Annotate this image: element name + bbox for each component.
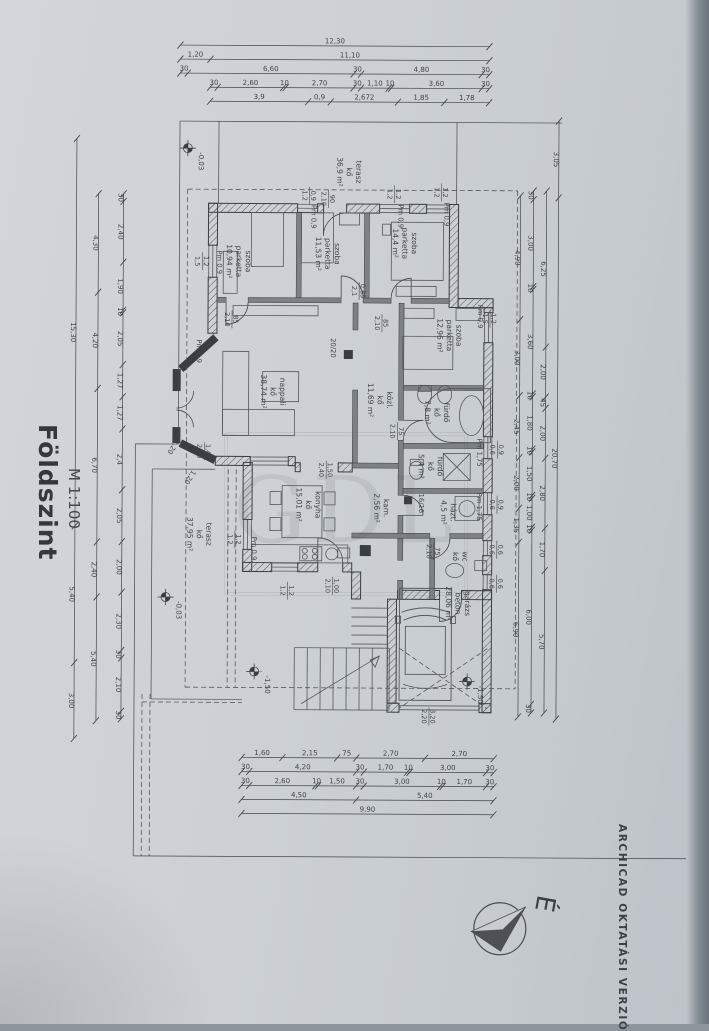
dim-label: 5,70	[537, 634, 545, 650]
interior-wall	[411, 298, 449, 303]
level-marker	[166, 597, 171, 602]
room-label: 12,96 m²	[435, 318, 444, 352]
note-label: 1,20	[166, 439, 181, 456]
furniture	[233, 305, 318, 315]
dim-label: 4,80	[414, 66, 430, 74]
room-label: kő	[195, 530, 204, 539]
interior-wall	[363, 298, 391, 303]
dim-label: 20,70	[550, 448, 558, 468]
dim-label: 3,9	[254, 93, 265, 101]
level-marker	[463, 677, 468, 682]
dim-label: 1,00	[525, 505, 533, 521]
dim-label: 10	[525, 492, 533, 501]
room-label: közl.	[385, 392, 394, 409]
dim-label: 1,70	[456, 778, 472, 786]
dim-label: 30	[527, 191, 535, 200]
dim-label: 2,45	[512, 419, 520, 435]
page-title: Földszint	[33, 424, 62, 560]
room-label: nappali	[278, 378, 287, 406]
opening-size: 2,20	[420, 709, 428, 724]
opening-size: 3,20	[428, 709, 436, 724]
dim-line	[180, 73, 489, 75]
level-marker	[467, 682, 472, 687]
level-marker	[250, 667, 255, 672]
dim-label: 6,25	[539, 261, 547, 277]
dim-label: 30	[356, 764, 365, 772]
exterior-wall	[483, 556, 492, 575]
exterior-wall	[458, 299, 493, 308]
dim-label: 1,50	[525, 466, 533, 482]
exterior-wall	[479, 704, 491, 713]
dim-label: 30	[481, 80, 490, 88]
dim-label: 0,9	[314, 93, 325, 101]
opening-size: 85	[381, 319, 389, 327]
furniture	[340, 213, 360, 225]
room-label: parketta	[234, 246, 243, 278]
furniture	[396, 286, 436, 296]
interior-wall	[398, 303, 404, 420]
dim-label: 75	[342, 749, 351, 757]
opening-size: 0,6	[488, 545, 496, 555]
dim-line	[556, 121, 559, 719]
dim-label: 1,70	[378, 764, 394, 772]
dim-label: 2,00	[539, 364, 547, 380]
dim-label: 30	[481, 66, 490, 74]
dim-label: 4,20	[91, 332, 99, 348]
opening-size: 85	[231, 315, 239, 323]
room-label: 11,69 m²	[366, 383, 375, 417]
level-marker	[254, 671, 259, 676]
dim-label: 1,35	[512, 517, 520, 533]
parapet-label: Pm 1,75	[475, 493, 483, 521]
level-label: -0,03	[174, 601, 182, 619]
dim-label: 30	[524, 704, 532, 713]
dim-label: 10	[116, 307, 124, 316]
interior-wall	[353, 303, 358, 330]
dim-label: 2,00	[115, 559, 123, 575]
opening-size: 0,9	[309, 191, 317, 201]
dim-label: 1,78	[459, 94, 475, 102]
opening-size: 2,10	[373, 316, 381, 331]
dim-label: 2,05	[116, 331, 124, 347]
dim-label: 1,70	[538, 542, 546, 558]
dim-label: 4,30	[91, 235, 99, 251]
opening-size: 0,6	[488, 445, 496, 455]
level-marker	[183, 144, 188, 149]
photo-shadow	[0, 830, 220, 1024]
dim-label: 30	[210, 79, 219, 87]
dim-line	[210, 87, 489, 88]
fixture-path	[401, 608, 449, 613]
parapet-label: Pm 0,9	[476, 305, 484, 329]
exterior-wall	[484, 308, 493, 313]
dim-label: 4,50	[291, 791, 307, 799]
dim-label: 2,05	[115, 508, 123, 524]
exterior-wall	[483, 459, 492, 493]
opening-size: 1,2	[441, 187, 449, 197]
pillar	[344, 350, 353, 359]
dim-label: 6,70	[90, 457, 98, 473]
parapet-label: Pm 0,9	[442, 203, 450, 227]
dim-label: 3,60	[526, 334, 534, 350]
opening-size: 2,10	[195, 444, 203, 459]
opening-size: 0,6	[496, 579, 504, 589]
opening-size: 1,40	[204, 444, 212, 459]
furniture	[404, 308, 434, 318]
plan-scale: M 1:100	[65, 468, 83, 529]
line	[180, 121, 562, 123]
dim-label: 3,00	[67, 693, 75, 709]
dim-label: 11,10	[340, 51, 360, 59]
exterior-wall	[483, 343, 492, 437]
door-swing	[391, 278, 411, 298]
opening-size: 90	[328, 195, 336, 203]
furniture	[222, 351, 248, 435]
dim-label: 2,80	[538, 485, 546, 501]
dim-label: 3,00	[394, 778, 410, 786]
dim-label: 2,40	[90, 562, 98, 578]
dim-label: 2,30	[114, 613, 122, 629]
line	[178, 121, 180, 444]
room-label: 11,53 m²	[314, 237, 323, 271]
dim-line	[241, 813, 493, 814]
dim-label: 1,27	[115, 405, 123, 421]
dim-label: 30	[114, 710, 122, 719]
dim-label: 2,4	[115, 454, 123, 466]
dim-label: 30	[353, 65, 362, 73]
dim-label: 4,20	[295, 763, 311, 771]
dim-label: 6,90	[511, 622, 519, 638]
dim-label: 45	[539, 398, 547, 407]
dim-label: 6,00	[524, 609, 532, 625]
dim-label: 30	[485, 778, 494, 786]
dim-label: 2,40	[116, 224, 124, 240]
dim-label: 1,10	[367, 80, 383, 88]
room-label: kő	[432, 408, 441, 417]
dim-label: 30	[180, 65, 189, 73]
dim-label: 30	[241, 763, 250, 771]
dim-label: 1,80	[525, 415, 533, 431]
opening-size: 2,10	[320, 192, 328, 207]
opening-size: 1,2	[301, 191, 309, 201]
dim-label: 30	[117, 193, 125, 202]
compass: É	[471, 892, 563, 955]
interior-wall	[248, 297, 341, 302]
dim-label: 2,70	[312, 79, 328, 87]
dim-label: 30	[241, 777, 250, 785]
gdl-watermark: GDL	[224, 432, 468, 596]
furniture	[251, 212, 283, 266]
opening-size: 2,1	[350, 286, 358, 296]
dim-label: 2,60	[274, 777, 290, 785]
line	[301, 656, 379, 704]
opening-size: 1,5	[193, 256, 201, 266]
parapet-label: Pm 0,9	[309, 205, 317, 229]
exterior-wall	[483, 515, 492, 541]
opening-size: 1,2	[202, 256, 210, 266]
interior-wall	[296, 213, 301, 298]
dim-label: 6,60	[263, 65, 279, 73]
level-label: -0,03	[197, 152, 205, 170]
dim-label: 30	[353, 79, 362, 87]
dim-label: 3,60	[429, 80, 445, 88]
dim-label: 12,30	[325, 37, 345, 45]
exterior-wall	[410, 204, 427, 213]
room-label: parketta	[400, 227, 409, 259]
room-label: terasz	[354, 160, 363, 183]
parapet-label: Pm 0,9	[215, 250, 223, 274]
opening-size: 1,2	[386, 189, 394, 199]
dim-label: 5,40	[89, 651, 97, 667]
room-label: kő	[269, 387, 278, 396]
fixture-path	[370, 656, 379, 667]
room-label: 7,8 m²	[423, 400, 432, 425]
dim-label: 30	[355, 778, 364, 786]
exterior-wall	[209, 203, 298, 212]
dim-label: 10	[525, 446, 533, 455]
dim-line	[210, 101, 489, 102]
dashed-line	[188, 189, 518, 191]
dim-line	[241, 799, 493, 800]
level-label: -1,50	[476, 686, 484, 704]
dim-label: 3,00	[526, 235, 534, 251]
exterior-wall	[387, 599, 397, 703]
fixture-path	[403, 615, 447, 620]
room-label: szoba	[244, 251, 253, 273]
room-label: 10,94 m²	[225, 244, 234, 278]
room-label: parketta	[323, 238, 332, 270]
dim-label: 3,00	[440, 764, 456, 772]
dim-label: 1,50	[329, 777, 345, 785]
dim-label: 10	[525, 524, 533, 533]
room-label: 38,74 m²	[259, 374, 268, 408]
dim-label: 10	[526, 391, 534, 400]
archicad-edition-note: ARCHICAD OKTATÁSI VERZIÓ	[616, 824, 628, 1031]
opening-size: 0,6	[488, 500, 496, 510]
door-swing	[177, 391, 194, 408]
room-label: szoba	[333, 243, 342, 265]
room-label: kő	[376, 396, 385, 405]
exterior-wall	[208, 277, 217, 333]
dim-label: 2,15	[302, 749, 318, 757]
opening-size: 0,9	[497, 500, 505, 510]
dim-label: 1,85	[413, 94, 429, 102]
dim-line	[74, 139, 77, 739]
opening-size: 1,2	[489, 314, 497, 324]
fixture	[459, 396, 483, 436]
level-label: -1,50	[263, 676, 271, 694]
dim-label: 2,10	[114, 677, 122, 693]
exterior-wall	[208, 203, 217, 245]
dim-label: 4,90	[513, 250, 521, 266]
opening-size: 1,2	[394, 189, 402, 199]
exterior-wall	[347, 204, 380, 213]
room-label: kő	[345, 167, 354, 176]
fixture-path	[403, 684, 447, 688]
dim-label: 30	[485, 764, 494, 772]
note-label: 1,20	[182, 469, 197, 486]
opening-size: 0,9	[497, 445, 505, 455]
opening-size: 1,2	[433, 187, 441, 197]
parapet-label: Pm 1,75	[475, 439, 483, 467]
room-label: terasz	[204, 523, 213, 546]
interior-wall	[217, 297, 226, 302]
room-label: parketta	[445, 320, 454, 352]
furniture	[382, 224, 390, 235]
dashed-line	[185, 687, 515, 689]
opening-size: 0,85	[359, 284, 367, 299]
room-label: 36,9 m²	[335, 157, 344, 186]
dim-label: 2,672	[354, 93, 374, 101]
note-label: 20/20	[329, 338, 337, 358]
dim-label: 1,27	[116, 373, 124, 389]
opening-size: 0,6	[496, 545, 504, 555]
fixture-path	[405, 626, 445, 674]
door-swing	[176, 410, 193, 427]
dim-label: 1,20	[188, 51, 204, 59]
dashed-line	[185, 189, 188, 687]
compass-label: É	[528, 893, 562, 915]
dim-label: 2,60	[243, 79, 259, 87]
dim-label: 15,30	[69, 322, 77, 342]
opening-size: 0,6	[488, 579, 496, 589]
dim-label: 5,40	[68, 586, 76, 602]
dim-label: 1,90	[116, 278, 124, 294]
dim-line	[180, 59, 489, 61]
room-label: 37,95 m²	[185, 517, 194, 551]
dim-label: 5,40	[417, 792, 433, 800]
opening-size: 2,10	[223, 312, 231, 327]
level-marker	[161, 592, 166, 597]
parapet-label: Pm 0,9	[195, 339, 203, 363]
dim-line	[242, 771, 494, 772]
dim-label: 2,00	[538, 425, 546, 441]
level-marker	[188, 148, 193, 153]
door-swing	[323, 213, 346, 236]
fixture-path	[399, 588, 452, 700]
parapet-label: Pm 0,9	[396, 204, 404, 228]
room-label: szoba	[410, 232, 419, 254]
room-label: 14,4 m²	[391, 228, 400, 257]
dim-label: 30	[114, 650, 122, 659]
dim-label: 9,90	[360, 806, 376, 814]
dim-label: 3,00	[513, 350, 521, 366]
dim-label: 2,70	[452, 750, 468, 758]
dim-label: 10	[526, 284, 534, 293]
dim-label: 3,05	[552, 152, 560, 168]
line	[151, 469, 152, 699]
dim-label: 2,70	[383, 750, 399, 758]
dashed-line	[142, 702, 242, 703]
photo-table-edge	[686, 0, 709, 1024]
dim-label: 1,60	[254, 749, 270, 757]
room-label: szoba	[454, 325, 463, 347]
dim-label: 2,00	[512, 475, 520, 491]
line	[133, 444, 135, 856]
room-label: fürdő	[442, 403, 451, 423]
